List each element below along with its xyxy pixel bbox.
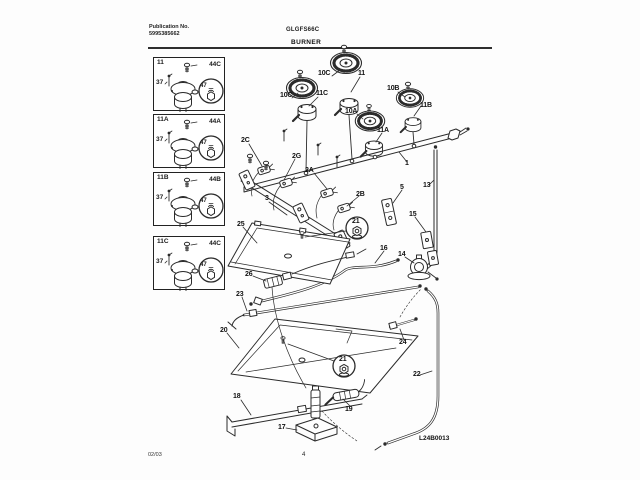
part-label: 11 — [358, 70, 365, 77]
part-label: 10C — [318, 70, 330, 77]
part-label: 5 — [400, 184, 404, 191]
part-label: 2A — [305, 167, 314, 174]
part-label: 16 — [380, 245, 387, 252]
part-label: 13 — [423, 182, 430, 189]
part-label: 2G — [292, 153, 301, 160]
part-label: 19 — [345, 406, 352, 413]
date-code: 02/03 — [148, 452, 162, 458]
part-label: 23 — [236, 291, 243, 298]
part-label: 18 — [233, 393, 240, 400]
part-label: 11C — [316, 90, 328, 97]
part-label: 20 — [220, 327, 227, 334]
circled-part-label: 21 — [339, 356, 346, 363]
part-label: 25 — [237, 221, 244, 228]
part-label: 22 — [413, 371, 420, 378]
part-label: 1 — [405, 160, 409, 167]
part-label: 11A — [377, 127, 389, 134]
page-number: 4 — [302, 452, 305, 458]
diagram-code: L24B0013 — [419, 435, 449, 442]
parts-diagram-page: Publication No. 5995385662 GLGFS66C BURN… — [0, 0, 640, 480]
part-label: 10B — [387, 85, 399, 92]
part-label: 2C — [241, 137, 250, 144]
part-label: 10C — [280, 92, 292, 99]
part-label: 10A — [345, 108, 357, 115]
part-label: 24 — [399, 339, 406, 346]
part-label: 3 — [265, 195, 269, 202]
part-label: 15 — [409, 211, 416, 218]
part-label: 17 — [278, 424, 285, 431]
part-label: 11B — [420, 102, 432, 109]
part-label: 2B — [356, 191, 365, 198]
circled-part-label: 21 — [352, 218, 359, 225]
part-label: 14 — [398, 251, 405, 258]
part-label: 26 — [245, 271, 252, 278]
